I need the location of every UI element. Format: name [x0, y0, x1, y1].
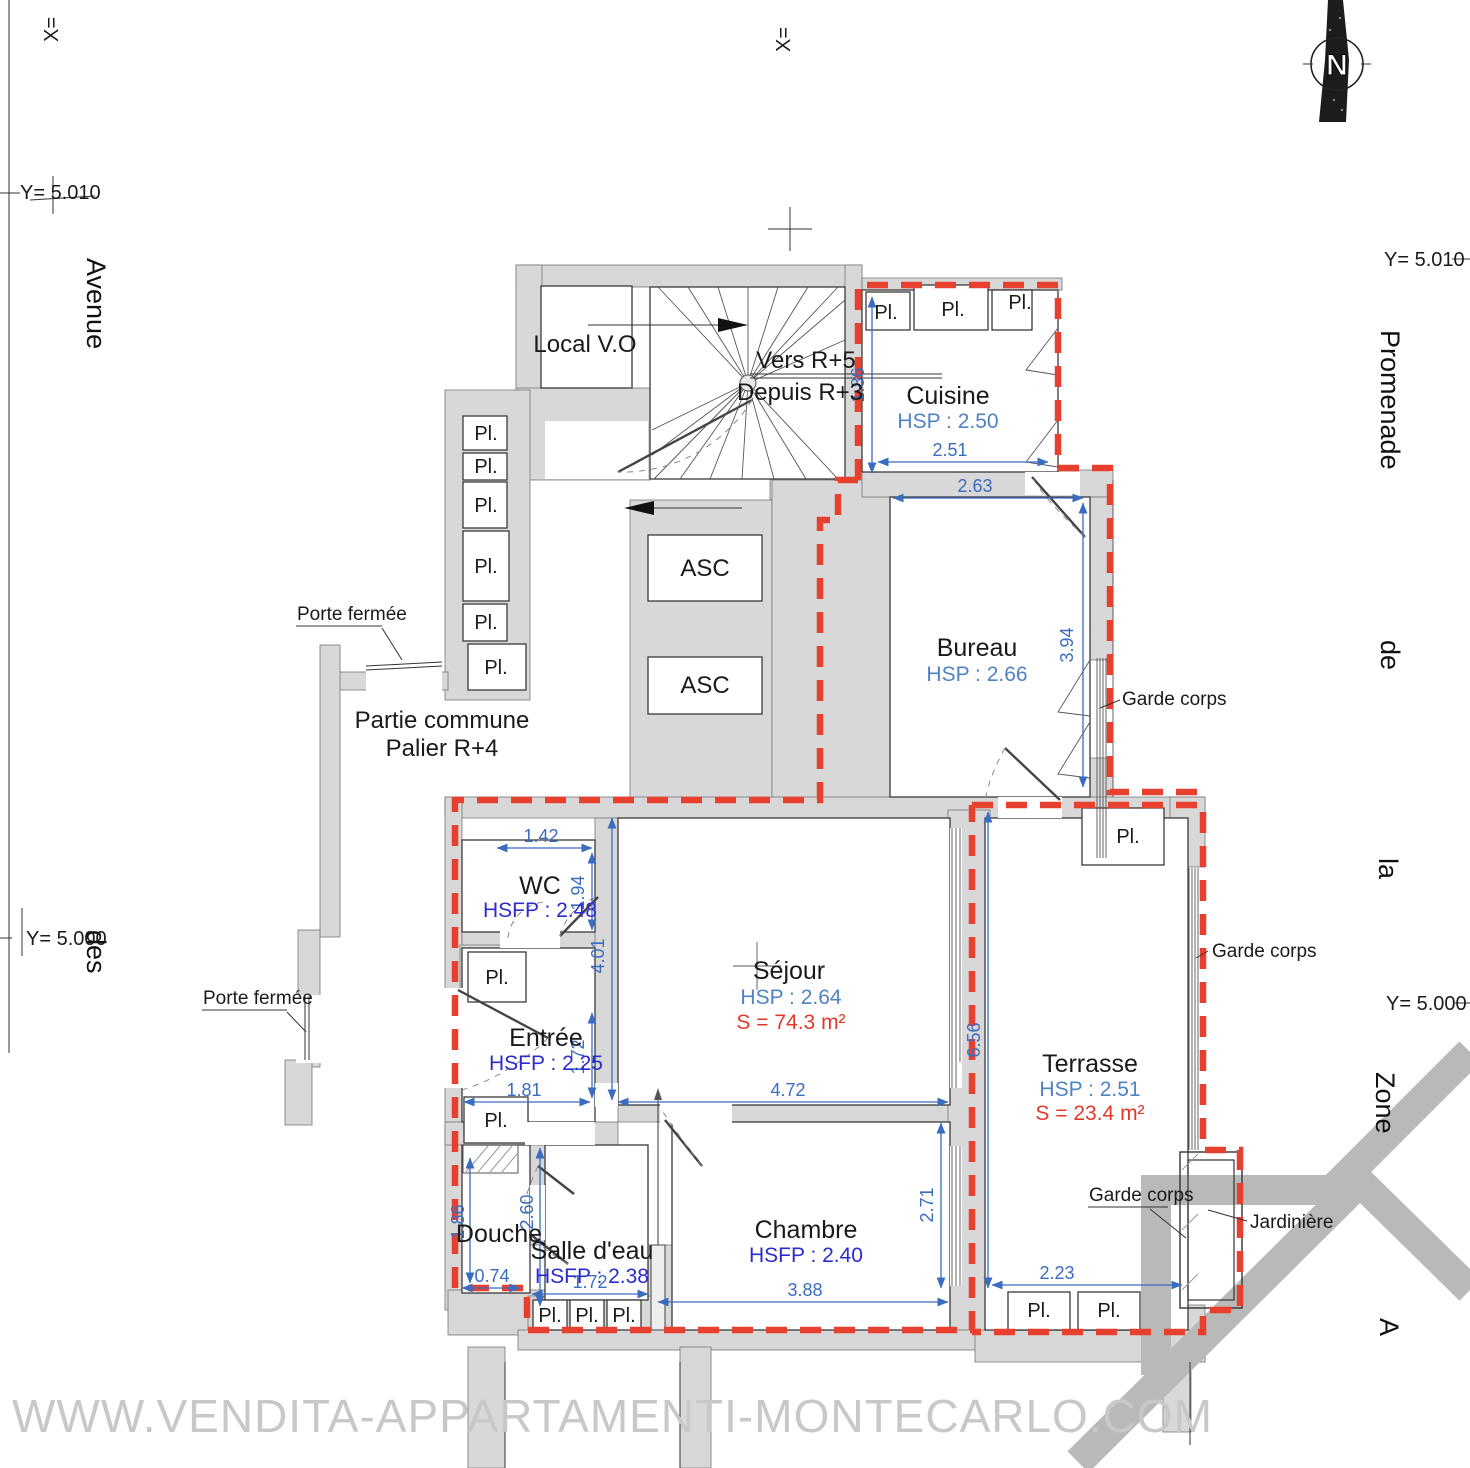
- label-pl-terrasse-1: Pl.: [1027, 1300, 1050, 1322]
- label-pl-terrasse-top: Pl.: [1116, 826, 1139, 848]
- watermark: WWW.VENDITA-APPARTAMENTI-MONTECARLO.COM: [12, 1390, 1213, 1442]
- label-pl-sde-3: Pl.: [612, 1305, 635, 1327]
- dim-chambre-height: 2.71: [917, 1187, 937, 1222]
- label-pl-1: Pl.: [474, 423, 497, 445]
- label-jardiniere: Jardinière: [1250, 1212, 1333, 1233]
- dim-hall-height: 4.01: [588, 938, 608, 973]
- label-porte-fermee-1: Porte fermée: [297, 604, 407, 625]
- label-garde-corps-2: Garde corps: [1212, 941, 1317, 962]
- axis-y5000-right: Y= 5.000: [1386, 993, 1467, 1015]
- label-pl-3: Pl.: [474, 495, 497, 517]
- dim-terrasse-height: 6.56: [964, 1022, 984, 1057]
- street-promenade: Promenade: [1375, 330, 1405, 470]
- label-pl-sde-1: Pl.: [538, 1305, 561, 1327]
- room-name-cuisine: Cuisine: [906, 382, 989, 410]
- label-partie-commune: Partie commune: [355, 707, 530, 734]
- room-height-sejour: HSP : 2.64: [740, 986, 841, 1009]
- street-avenue: Avenue: [81, 258, 111, 349]
- label-palier: Palier R+4: [386, 735, 499, 762]
- room-height-chambre: HSFP : 2.40: [749, 1244, 863, 1267]
- axis-y5000-left: Y= 5.000: [26, 928, 107, 950]
- label-asc-1: ASC: [680, 555, 729, 582]
- label-pl-4: Pl.: [474, 556, 497, 578]
- room-name-douche: Douche: [456, 1220, 542, 1248]
- label-garde-corps-1: Garde corps: [1122, 689, 1227, 710]
- label-pl-wc: Pl.: [485, 967, 508, 989]
- room-name-salle-deau: Salle d'eau: [531, 1237, 654, 1265]
- compass: N: [1303, 0, 1371, 122]
- label-vers-r5: Vers R+5: [756, 347, 855, 374]
- dim-entree-width: 1.81: [506, 1080, 541, 1100]
- street-a: A: [1374, 1318, 1404, 1336]
- label-porte-fermee-2: Porte fermée: [203, 988, 313, 1009]
- floor-plan-page: N 1.86 2.51: [0, 0, 1470, 1468]
- dim-chambre-width: 3.88: [787, 1280, 822, 1300]
- axis-y5010-left: Y= 5.010: [20, 182, 101, 204]
- room-name-terrasse: Terrasse: [1042, 1050, 1138, 1078]
- axis-x-mid: X=: [773, 27, 795, 52]
- pocket-door: [651, 1088, 665, 1330]
- room-height-cuisine: HSP : 2.50: [897, 410, 998, 433]
- room-name-bureau: Bureau: [937, 634, 1018, 662]
- dim-douche-width: 0.74: [474, 1266, 509, 1286]
- label-pl-sde-2: Pl.: [575, 1305, 598, 1327]
- label-pl-terrasse-2: Pl.: [1097, 1300, 1120, 1322]
- room-name-wc: WC: [519, 872, 561, 900]
- room-height-bureau: HSP : 2.66: [926, 663, 1027, 686]
- label-pl-cuisine-3: Pl.: [1008, 292, 1031, 314]
- label-asc-2: ASC: [680, 672, 729, 699]
- room-name-entree: Entrée: [509, 1024, 583, 1052]
- label-pl-cuisine-2: Pl.: [941, 299, 964, 321]
- dim-bureau-height: 3.94: [1057, 627, 1077, 662]
- dim-terrasse-width: 2.23: [1039, 1263, 1074, 1283]
- axis-x-left: X=: [41, 17, 63, 42]
- room-height-wc: HSFP : 2.48: [483, 899, 597, 922]
- street-la: la: [1373, 858, 1403, 880]
- room-name-chambre: Chambre: [755, 1216, 858, 1244]
- room-name-sejour: Séjour: [753, 957, 825, 985]
- room-area-sejour: S = 74.3 m²: [736, 1011, 845, 1034]
- floor-plan-drawing: N 1.86 2.51: [0, 0, 1470, 1468]
- dim-sejour-width: 4.72: [770, 1080, 805, 1100]
- dim-bureau-width: 2.63: [957, 476, 992, 496]
- street-de: de: [1375, 640, 1405, 670]
- street-zone: Zone: [1370, 1072, 1400, 1134]
- dim-cuisine-width: 2.51: [932, 440, 967, 460]
- axis-y5010-right: Y= 5.010: [1384, 249, 1465, 271]
- label-pl-cuisine-1: Pl.: [874, 302, 897, 324]
- label-garde-corps-3: Garde corps: [1089, 1185, 1194, 1206]
- room-height-terrasse: HSP : 2.51: [1039, 1078, 1140, 1101]
- room-height-entree: HSFP : 2.25: [489, 1052, 603, 1075]
- label-local-vo: Local V.O: [533, 331, 636, 358]
- label-pl-5: Pl.: [474, 612, 497, 634]
- compass-north-label: N: [1326, 49, 1348, 82]
- label-pl-2: Pl.: [474, 456, 497, 478]
- label-depuis-r3: Depuis R+3: [737, 379, 863, 406]
- label-pl-entree: Pl.: [484, 1110, 507, 1132]
- dim-wc-width: 1.42: [523, 826, 558, 846]
- porte-fermee-door-1: [366, 662, 442, 666]
- label-pl-6: Pl.: [484, 657, 507, 679]
- room-height-salle-deau: HSFP : 2.38: [535, 1265, 649, 1288]
- room-area-terrasse: S = 23.4 m²: [1035, 1102, 1144, 1125]
